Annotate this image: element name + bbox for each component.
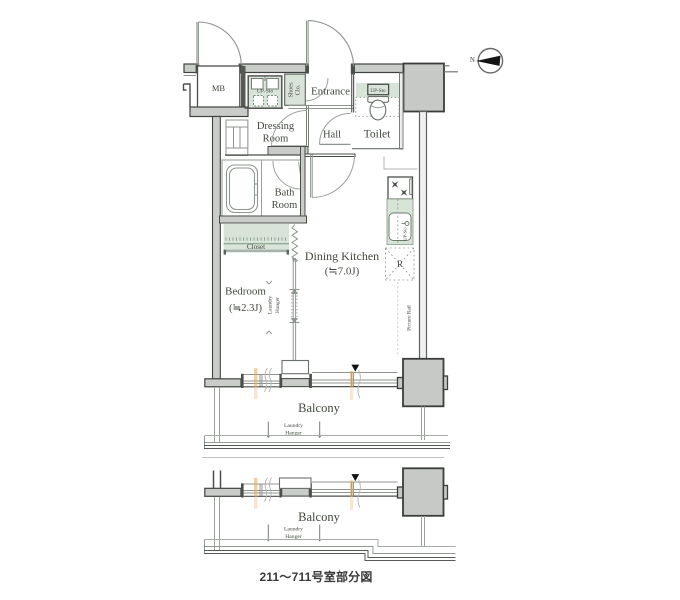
svg-text:Laundry: Laundry bbox=[268, 296, 274, 315]
svg-text:Bedroom: Bedroom bbox=[225, 286, 266, 298]
svg-text:MB: MB bbox=[212, 83, 226, 93]
svg-text:UP-Sto: UP-Sto bbox=[370, 88, 386, 94]
svg-text:Hanger: Hanger bbox=[275, 297, 281, 313]
svg-text:Bath: Bath bbox=[275, 188, 296, 199]
svg-text:Dressing: Dressing bbox=[257, 121, 295, 132]
svg-text:Laundry: Laundry bbox=[284, 423, 303, 429]
svg-text:Balcony: Balcony bbox=[298, 510, 340, 524]
svg-text:Entrance: Entrance bbox=[311, 86, 350, 98]
svg-text:Picture Rail: Picture Rail bbox=[407, 305, 413, 331]
svg-text:Laundry: Laundry bbox=[284, 527, 303, 533]
svg-text:211～711号室部分図: 211～711号室部分図 bbox=[259, 569, 372, 584]
svg-text:R: R bbox=[397, 259, 403, 269]
svg-text:Hall: Hall bbox=[323, 130, 341, 141]
svg-text:N: N bbox=[470, 57, 475, 64]
svg-text:UP-Sto: UP-Sto bbox=[257, 89, 273, 95]
svg-text:Room: Room bbox=[263, 134, 289, 145]
svg-text:Toilet: Toilet bbox=[364, 129, 391, 141]
svg-text:(≒7.0J): (≒7.0J) bbox=[325, 266, 360, 278]
svg-text:(≒2.3J): (≒2.3J) bbox=[229, 303, 263, 314]
svg-text:Balcony: Balcony bbox=[298, 401, 340, 415]
svg-text:Clo.: Clo. bbox=[295, 84, 302, 95]
svg-text:UP-Sto: UP-Sto bbox=[403, 227, 408, 241]
svg-text:Shoes: Shoes bbox=[288, 82, 295, 98]
svg-text:Dining Kitchen: Dining Kitchen bbox=[305, 249, 379, 263]
svg-text:Room: Room bbox=[272, 200, 298, 211]
